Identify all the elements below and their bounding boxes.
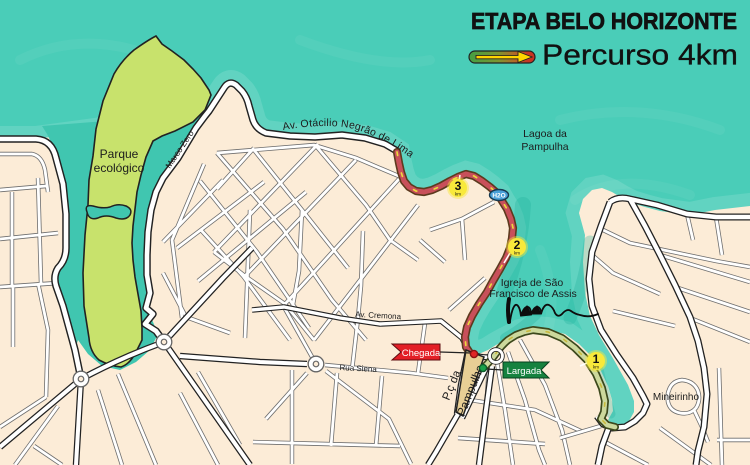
svg-text:ecológico: ecológico xyxy=(94,161,145,175)
svg-text:km: km xyxy=(455,192,461,197)
svg-text:km: km xyxy=(593,365,599,370)
svg-text:km: km xyxy=(514,251,520,256)
svg-text:ETAPA BELO HORIZONTE: ETAPA BELO HORIZONTE xyxy=(471,8,737,34)
svg-text:Parque: Parque xyxy=(100,147,139,161)
svg-text:Mineirinho: Mineirinho xyxy=(653,392,700,403)
svg-text:H2O: H2O xyxy=(492,193,505,200)
svg-text:Largada: Largada xyxy=(507,366,543,377)
svg-text:Pampulha: Pampulha xyxy=(521,141,568,153)
svg-text:Chegada: Chegada xyxy=(402,348,441,359)
svg-text:Francisco de Assis: Francisco de Assis xyxy=(489,288,577,300)
svg-text:Percurso 4km: Percurso 4km xyxy=(542,40,738,72)
svg-text:Lagoa da: Lagoa da xyxy=(523,128,567,140)
